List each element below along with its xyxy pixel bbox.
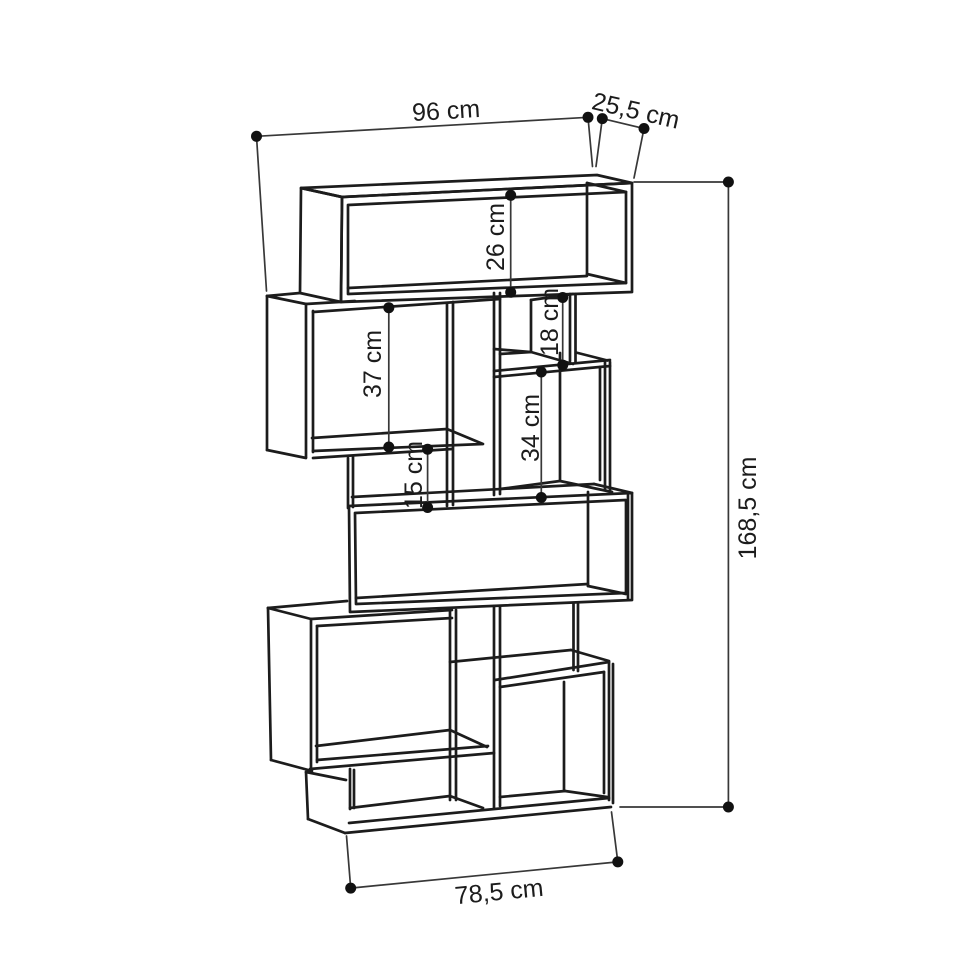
svg-text:34 cm: 34 cm (517, 394, 545, 462)
svg-text:37 cm: 37 cm (359, 330, 387, 398)
svg-text:18 cm: 18 cm (536, 288, 564, 356)
svg-text:168,5 cm: 168,5 cm (734, 457, 762, 560)
svg-text:25,5 cm: 25,5 cm (589, 87, 682, 134)
svg-text:96 cm: 96 cm (411, 95, 481, 127)
svg-text:15 cm: 15 cm (400, 441, 428, 509)
svg-text:26 cm: 26 cm (482, 203, 510, 271)
svg-text:78,5 cm: 78,5 cm (453, 874, 544, 910)
